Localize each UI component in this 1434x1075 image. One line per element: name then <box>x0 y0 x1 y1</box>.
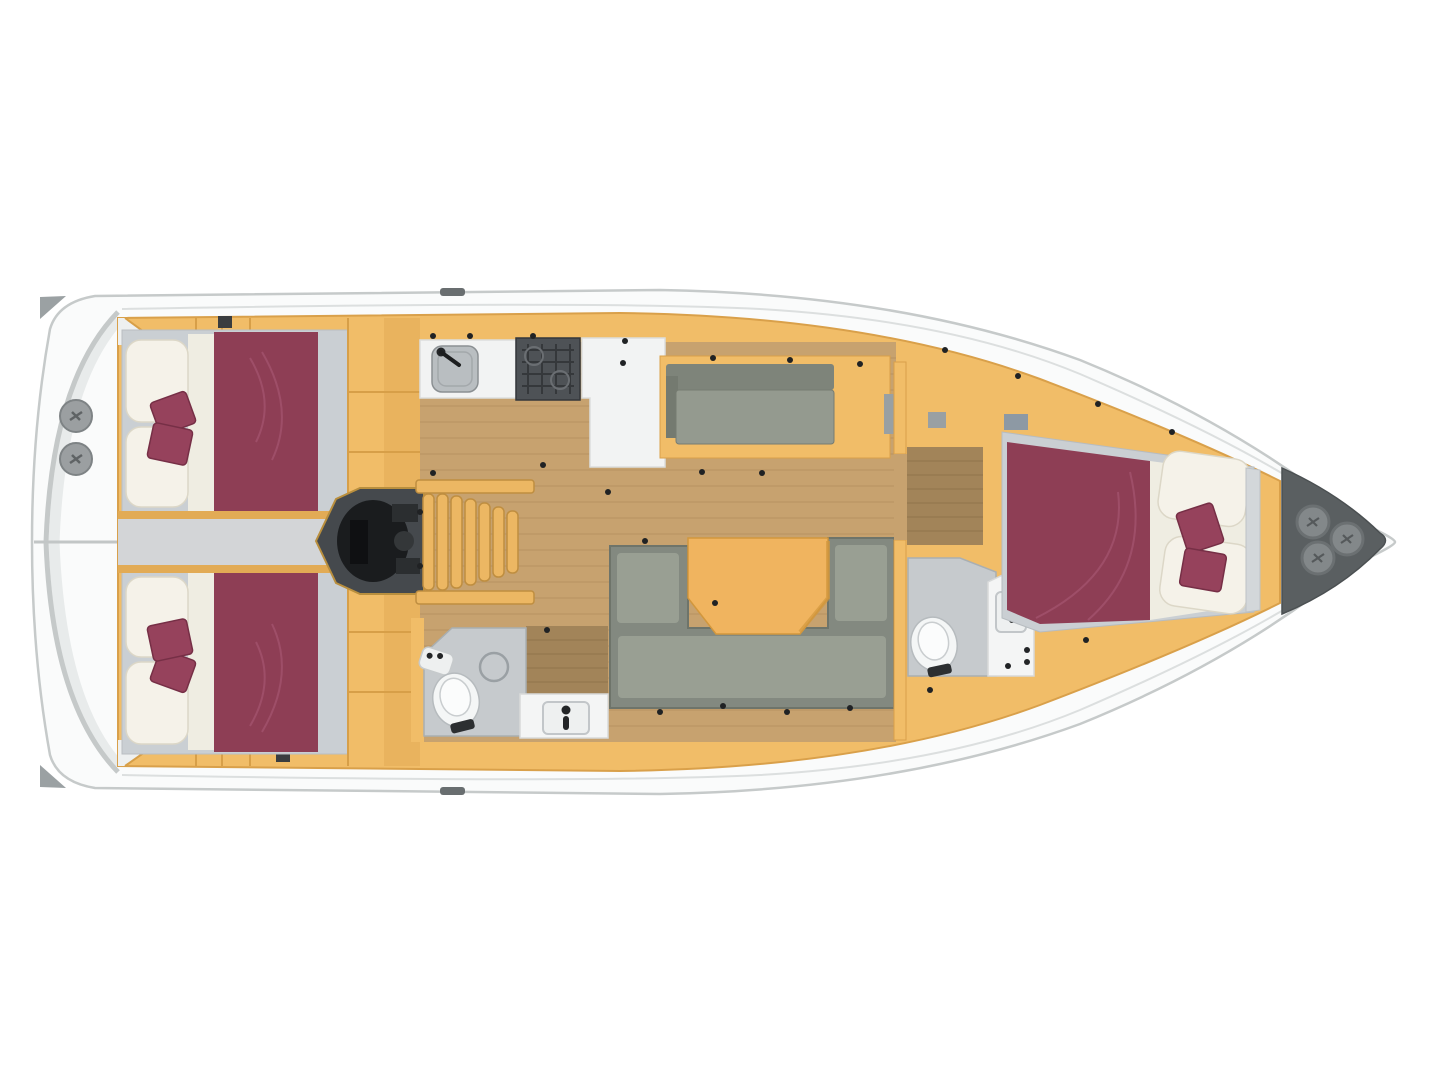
locker-front-2 <box>1004 414 1028 430</box>
settee-back-cushion <box>666 364 834 390</box>
engine <box>337 500 420 582</box>
small-locker <box>218 316 232 328</box>
bulkhead-upper <box>894 362 906 454</box>
forward-cabin <box>1002 432 1260 632</box>
sofa-right-cushion <box>835 545 887 621</box>
bow-locker <box>1282 468 1386 614</box>
stern-winch-2 <box>60 443 92 475</box>
accent-cushion-2 <box>147 422 194 466</box>
head-wood-floor <box>526 626 608 696</box>
saloon-table <box>688 538 828 634</box>
bed-duvet <box>1007 442 1150 624</box>
bow-hatch-3 <box>1302 542 1334 574</box>
top-settee <box>660 356 896 458</box>
locker-front-1 <box>928 412 946 428</box>
vanity-knob-1 <box>1024 647 1030 653</box>
accent-cushion-2 <box>147 618 194 662</box>
saloon-seating <box>610 538 894 708</box>
vanity-faucet <box>562 706 571 715</box>
unit-knob <box>620 360 626 366</box>
bow-hatch-2 <box>1331 523 1363 555</box>
yacht-floor-plan <box>0 0 1434 1075</box>
bow-hatch-1 <box>1297 506 1329 538</box>
sofa-bench-cushion <box>618 636 886 698</box>
deck-cleat-top <box>440 288 465 296</box>
galley-unit <box>582 338 665 467</box>
wardrobe-shade <box>384 318 420 514</box>
sofa-left-arm-cushion <box>617 553 679 623</box>
doorway-floor <box>894 454 907 540</box>
bulkhead-lower <box>894 540 906 740</box>
settee-seat-cushion <box>676 390 834 444</box>
stern-winch-1 <box>60 400 92 432</box>
headboard <box>1246 468 1260 612</box>
head-wall-left <box>411 618 424 742</box>
wardrobe-floor <box>907 447 983 545</box>
deck-cleat-bottom <box>440 787 465 795</box>
accent-cushion-2 <box>1179 548 1227 593</box>
vanity-knob-2 <box>1024 659 1030 665</box>
vanity-faucet-stem <box>563 716 569 730</box>
